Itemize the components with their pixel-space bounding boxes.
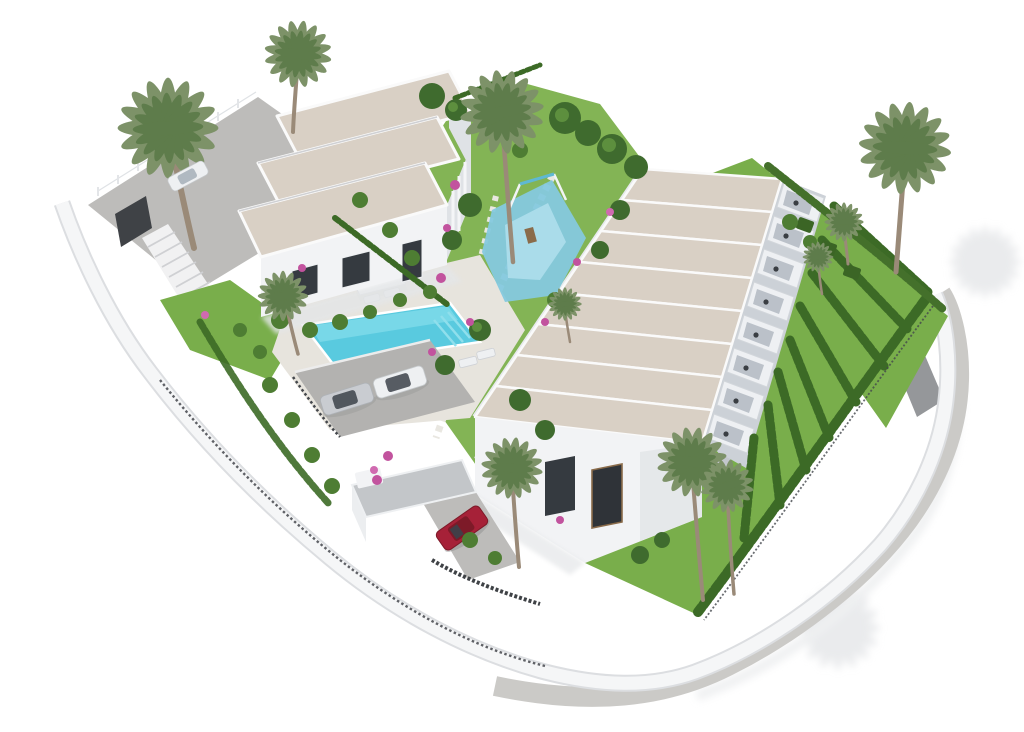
end-window — [545, 456, 575, 516]
end-door — [592, 464, 622, 528]
architectural-render-canvas — [0, 0, 1024, 732]
